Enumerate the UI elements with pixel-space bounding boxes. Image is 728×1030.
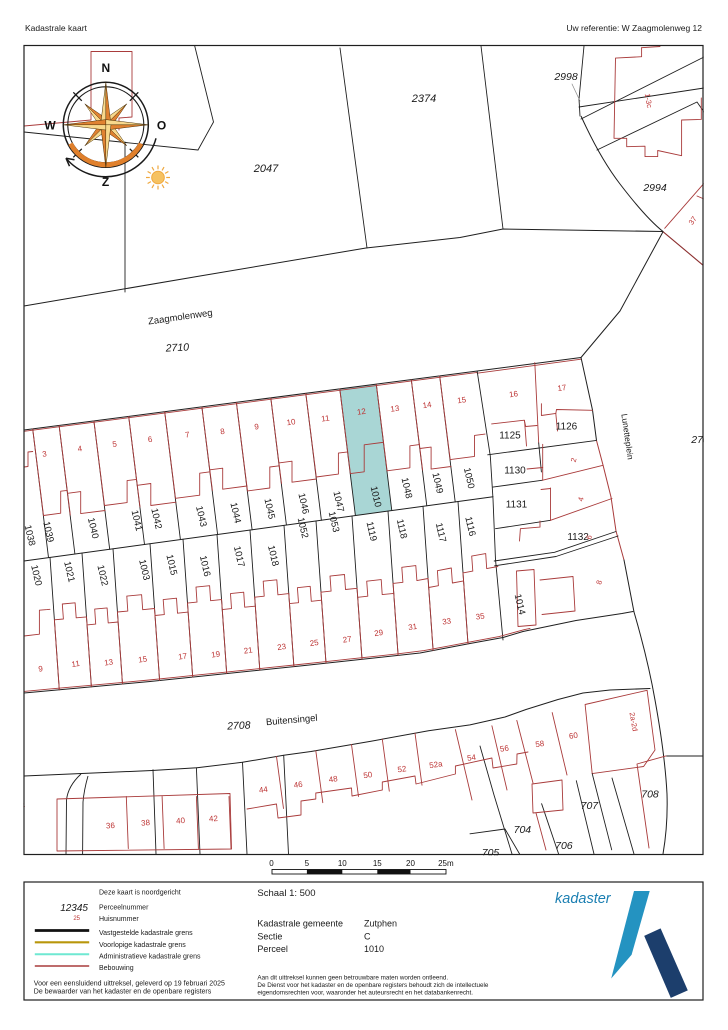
svg-text:36: 36	[106, 821, 116, 831]
svg-text:De Dienst voor het kadaster en: De Dienst voor het kadaster en de openba…	[257, 982, 489, 989]
svg-text:O: O	[157, 119, 166, 133]
svg-text:58: 58	[535, 739, 546, 749]
svg-text:44: 44	[258, 785, 269, 795]
svg-text:Bebouwing: Bebouwing	[99, 965, 134, 972]
svg-text:12: 12	[356, 407, 367, 417]
svg-text:707: 707	[581, 800, 600, 812]
svg-text:Perceel: Perceel	[257, 944, 288, 954]
svg-text:21: 21	[243, 645, 254, 655]
svg-text:29: 29	[374, 628, 385, 638]
svg-text:14: 14	[422, 400, 433, 410]
svg-text:56: 56	[499, 743, 510, 753]
svg-text:2047: 2047	[253, 163, 279, 175]
svg-text:1131: 1131	[506, 500, 528, 511]
svg-text:W: W	[44, 119, 56, 133]
svg-text:Kadastrale kaart: Kadastrale kaart	[25, 23, 88, 33]
svg-text:27: 27	[342, 634, 353, 644]
svg-text:50: 50	[363, 770, 374, 780]
svg-text:C: C	[364, 931, 371, 941]
svg-text:46: 46	[293, 780, 304, 790]
svg-text:Zutphen: Zutphen	[364, 919, 397, 929]
svg-text:2710: 2710	[164, 341, 189, 354]
svg-text:20: 20	[406, 859, 415, 868]
svg-text:De bewaarder van het kadaster: De bewaarder van het kadaster en de open…	[34, 988, 212, 995]
svg-text:Huisnummer: Huisnummer	[99, 916, 139, 923]
svg-text:42: 42	[209, 814, 219, 824]
svg-text:1126: 1126	[556, 422, 578, 433]
svg-text:52a: 52a	[429, 759, 444, 770]
svg-text:Voor een eensluidend uittrekse: Voor een eensluidend uittreksel, gelever…	[34, 981, 225, 988]
svg-text:23: 23	[277, 642, 288, 652]
svg-text:706: 706	[555, 840, 573, 852]
svg-text:52: 52	[397, 764, 408, 774]
svg-text:25: 25	[309, 638, 320, 648]
svg-text:2994: 2994	[642, 182, 667, 194]
svg-text:38: 38	[141, 818, 151, 828]
svg-text:31: 31	[408, 622, 419, 632]
svg-text:35: 35	[475, 611, 486, 621]
svg-text:40: 40	[176, 816, 186, 826]
svg-text:Uw referentie: W Zaagmolenweg: Uw referentie: W Zaagmolenweg 12	[566, 23, 702, 33]
svg-text:Schaal 1: 500: Schaal 1: 500	[257, 888, 315, 899]
svg-text:13: 13	[104, 657, 115, 667]
svg-text:Perceelnummer: Perceelnummer	[99, 905, 149, 912]
svg-text:5: 5	[305, 859, 310, 868]
svg-text:1125: 1125	[499, 431, 521, 442]
svg-text:33: 33	[442, 616, 453, 626]
svg-text:Administratieve kadastrale gre: Administratieve kadastrale grens	[99, 954, 201, 961]
svg-text:1130: 1130	[504, 466, 526, 477]
svg-text:10: 10	[338, 859, 347, 868]
svg-text:10: 10	[286, 417, 297, 427]
svg-text:Deze kaart is noordgericht: Deze kaart is noordgericht	[99, 890, 181, 897]
svg-text:N: N	[101, 61, 110, 75]
svg-text:708: 708	[641, 789, 659, 801]
svg-text:54: 54	[467, 753, 478, 763]
svg-text:2998: 2998	[553, 71, 578, 83]
svg-text:0: 0	[269, 859, 274, 868]
svg-text:16: 16	[509, 389, 520, 399]
svg-text:13: 13	[390, 404, 401, 414]
svg-text:15: 15	[457, 395, 468, 405]
svg-text:15: 15	[373, 859, 382, 868]
svg-text:Sectie: Sectie	[257, 931, 282, 941]
svg-text:25m: 25m	[438, 859, 454, 868]
svg-text:kadaster: kadaster	[555, 891, 612, 907]
svg-text:19: 19	[211, 649, 222, 659]
svg-text:Voorlopige kadastrale grens: Voorlopige kadastrale grens	[99, 942, 186, 949]
svg-text:15: 15	[138, 654, 149, 664]
svg-text:2374: 2374	[411, 93, 436, 105]
svg-text:Kadastrale gemeente: Kadastrale gemeente	[257, 919, 343, 929]
svg-text:17: 17	[178, 651, 189, 661]
svg-text:Aan dit uittreksel kunnen geen: Aan dit uittreksel kunnen geen betrouwba…	[257, 975, 448, 982]
svg-text:eigendomsrechten voor, waarond: eigendomsrechten voor, waaronder het aut…	[257, 990, 473, 997]
svg-text:Z: Z	[102, 175, 109, 189]
svg-text:1010: 1010	[364, 944, 384, 954]
svg-text:Vastgestelde kadastrale grens: Vastgestelde kadastrale grens	[99, 930, 193, 937]
svg-text:2708: 2708	[226, 719, 251, 732]
svg-text:704: 704	[514, 824, 532, 836]
svg-text:12345: 12345	[60, 903, 88, 914]
svg-text:48: 48	[328, 774, 339, 784]
svg-text:25: 25	[73, 916, 80, 922]
svg-text:17: 17	[557, 383, 568, 393]
svg-text:60: 60	[568, 731, 579, 741]
